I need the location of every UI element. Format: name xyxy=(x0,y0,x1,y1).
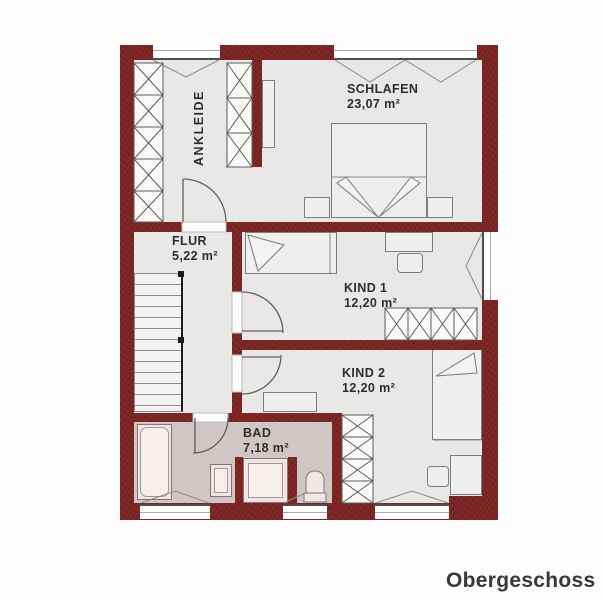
kind2-bed xyxy=(432,347,482,440)
wall-shower-right xyxy=(288,457,297,503)
window-ankleide-north xyxy=(153,45,220,60)
room-area: 12,20 m² xyxy=(342,381,395,396)
room-label-flur: FLUR 5,22 m² xyxy=(172,234,218,264)
room-area: 12,20 m² xyxy=(344,296,397,311)
kind1-desk xyxy=(385,232,433,252)
kind1-chair xyxy=(397,253,423,273)
room-label-kind2: KIND 2 12,20 m² xyxy=(342,366,395,396)
room-name: KIND 2 xyxy=(342,366,395,381)
kind1-bed xyxy=(245,232,337,274)
window-kind1-east xyxy=(482,232,498,300)
floor-title: Obergeschoss xyxy=(446,569,596,593)
schlafen-nightstand-left xyxy=(304,197,330,218)
wall-shower-left xyxy=(235,457,243,503)
room-name: SCHLAFEN xyxy=(347,82,418,97)
wall-schlafen-kind1 xyxy=(226,222,482,232)
window-bad-south xyxy=(140,504,210,519)
schlafen-dresser xyxy=(262,80,275,148)
wall-kind1-kind2 xyxy=(232,340,482,350)
wall-flur-kind2-b xyxy=(232,392,242,413)
wall-flur-kind1-a xyxy=(232,232,242,292)
room-area: 7,18 m² xyxy=(243,441,289,456)
wall-east-lower xyxy=(482,300,498,520)
room-name: BAD xyxy=(243,426,289,441)
wall-flur-ankleide-left xyxy=(134,222,182,232)
room-name: KIND 1 xyxy=(344,281,397,296)
wall-bad-north-left xyxy=(134,413,193,422)
shower-tray xyxy=(243,458,288,503)
window-kind2-south xyxy=(375,504,449,519)
bathtub xyxy=(137,424,172,500)
wall-southeast-corner xyxy=(449,496,498,520)
schlafen-double-bed xyxy=(331,123,427,218)
wall-bad-north-right xyxy=(228,413,332,422)
room-label-ankleide: ANKLEIDE xyxy=(192,90,206,166)
wall-bad-kind2 xyxy=(332,413,342,520)
wall-east-upper xyxy=(482,45,498,232)
staircase xyxy=(134,273,183,412)
kind2-desk xyxy=(450,455,482,495)
window-wc-south xyxy=(283,504,327,519)
room-area: 5,22 m² xyxy=(172,249,218,264)
wall-ankleide-schlafen xyxy=(252,60,262,167)
room-name: FLUR xyxy=(172,234,218,249)
floor-plan-page: ANKLEIDE SCHLAFEN 23,07 m² FLUR 5,22 m² … xyxy=(0,0,603,600)
kind2-chair xyxy=(427,466,449,487)
schlafen-nightstand-right xyxy=(427,197,453,218)
room-label-kind1: KIND 1 12,20 m² xyxy=(344,281,397,311)
room-label-schlafen: SCHLAFEN 23,07 m² xyxy=(347,82,418,112)
wall-top-mid xyxy=(220,45,334,60)
room-label-bad: BAD 7,18 m² xyxy=(243,426,289,456)
kind2-sideboard xyxy=(263,392,317,412)
wall-west xyxy=(120,45,134,520)
window-schlafen-north xyxy=(334,45,477,60)
bathroom-sink xyxy=(210,464,232,497)
room-area: 23,07 m² xyxy=(347,97,418,112)
